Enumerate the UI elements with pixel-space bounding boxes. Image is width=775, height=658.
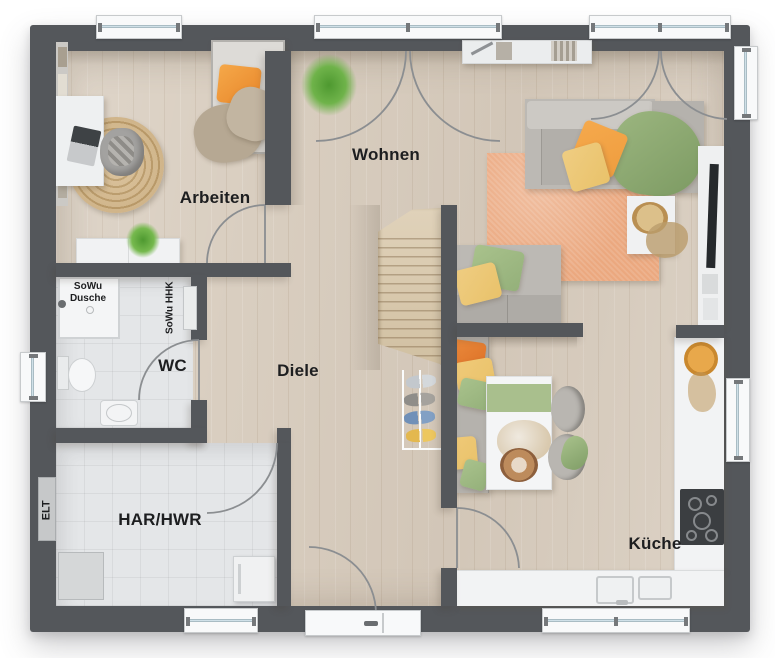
wall-har-corner: [277, 428, 291, 443]
window-tick: [496, 23, 500, 32]
window-kueche-right: [726, 378, 750, 462]
room-label-kueche: Küche: [595, 534, 715, 554]
toilet-bowl: [68, 358, 96, 392]
fruit-bowl: [684, 342, 718, 376]
shelf-books: [551, 41, 577, 61]
burner: [706, 495, 717, 506]
wall-sofa: [457, 323, 583, 337]
window-glass: [736, 383, 739, 457]
entrance-door: [305, 610, 421, 636]
room-label-diele: Diele: [258, 361, 338, 381]
terrace-door-1: [314, 15, 502, 39]
stair-steps: [378, 238, 441, 366]
wall-kueche-top-stub: [676, 325, 724, 338]
dryer-detail: [238, 564, 241, 594]
window-tick: [725, 23, 729, 32]
window-tick: [684, 617, 688, 626]
window-glass: [101, 25, 177, 28]
dining-chair: [551, 386, 585, 432]
window-tick: [176, 23, 180, 32]
annotation-shower-line2: Dusche: [60, 293, 116, 305]
window-glass: [189, 619, 253, 622]
tv-decor: [702, 274, 718, 294]
window-tick: [98, 23, 102, 32]
door-divider: [382, 613, 384, 633]
wall-har-right: [277, 443, 291, 606]
window-har-bottom: [184, 608, 258, 633]
window-tick: [734, 380, 743, 384]
annotation-heater: SoWu HHK: [164, 276, 176, 340]
window-tick: [29, 396, 38, 400]
window-tick: [252, 617, 256, 626]
window-right-top: [734, 46, 758, 120]
table-bowl: [500, 448, 538, 482]
window-arbeiten: [96, 15, 182, 39]
window-glass: [744, 51, 747, 115]
window-glass: [31, 357, 34, 397]
terrace-door-2: [589, 15, 731, 39]
window-tick: [614, 617, 618, 626]
window-tick: [742, 48, 751, 52]
window-tick: [544, 617, 548, 626]
window-kueche-bottom: [542, 608, 690, 633]
burner: [688, 497, 702, 511]
window-tick: [406, 23, 410, 32]
annotation-shower: SoWu Dusche: [60, 281, 116, 304]
wall-arbeiten-right: [265, 51, 291, 205]
window-tick: [186, 617, 190, 626]
shelf-books: [496, 42, 512, 60]
room-label-wc: WC: [145, 356, 200, 376]
window-tick: [734, 456, 743, 460]
plant-sideboard: [126, 222, 160, 258]
window-tick: [29, 354, 38, 358]
annotation-shower-line1: SoWu: [60, 281, 116, 293]
room-label-arbeiten: Arbeiten: [155, 188, 275, 208]
window-tick: [316, 23, 320, 32]
washing-machine: [58, 552, 104, 600]
heater-hhk: [183, 286, 197, 330]
wall-diele-dining: [441, 205, 457, 508]
table-runner: [487, 384, 551, 412]
room-label-wohnen: Wohnen: [326, 145, 446, 165]
sink-basin: [638, 576, 672, 600]
shoe-rack-shelf: [402, 448, 442, 450]
shower-drain: [86, 306, 94, 314]
staircase: [378, 208, 441, 366]
wall-kueche-stub: [441, 568, 457, 606]
room-label-har-hwr: HAR/HWR: [100, 510, 220, 530]
counter-decor: [688, 372, 716, 412]
wall-wc-har-divider: [56, 428, 207, 443]
window-tick: [742, 114, 751, 118]
annotation-elt: ELT: [41, 490, 54, 530]
wc-sink-basin: [106, 404, 132, 422]
sink-basin: [596, 576, 634, 604]
window-wc-left: [20, 352, 46, 402]
door-handle: [364, 621, 378, 626]
plant-corner: [301, 54, 357, 116]
floor-plan: Arbeiten Wohnen Diele WC HAR/HWR Küche S…: [0, 0, 775, 658]
window-tick: [591, 23, 595, 32]
tv-decor: [703, 298, 718, 320]
book: [58, 47, 67, 67]
burner: [693, 512, 711, 530]
window-tick: [658, 23, 662, 32]
kitchen-counter-bottom: [457, 570, 724, 606]
chair-blanket: [108, 136, 134, 166]
shoe-rack-edge: [402, 370, 404, 450]
faucet: [616, 600, 628, 605]
